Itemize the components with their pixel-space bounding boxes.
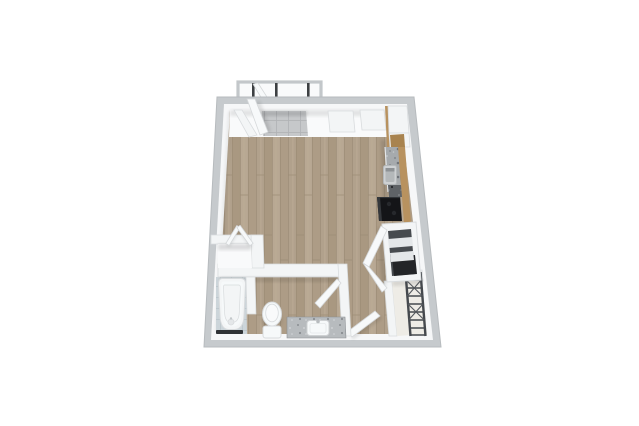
counter-dark-section [388,185,402,197]
cabinet-wood-top [390,134,405,147]
toilet-tank [263,326,281,338]
vanity [287,317,346,338]
toilet [262,302,282,338]
kitchen-sink [384,166,397,185]
bifold-closet-right-wall [251,235,264,268]
shadow [218,244,251,250]
tub-nook-wall [246,277,256,314]
bathroom-threshold-vent [216,330,243,334]
toilet-seat [266,304,279,322]
floor-plan-image [0,0,639,426]
tub-drain [228,319,234,325]
corner-cabinet [388,106,409,133]
shadow [262,111,307,116]
floor-plan-svg [0,0,639,426]
tub-faucet [230,317,232,319]
burner [387,202,391,206]
window-niche [360,110,386,130]
window-niche [328,111,355,132]
range [377,197,402,221]
bathtub [219,279,246,330]
burner [392,211,396,215]
vanity-faucet [316,320,320,324]
